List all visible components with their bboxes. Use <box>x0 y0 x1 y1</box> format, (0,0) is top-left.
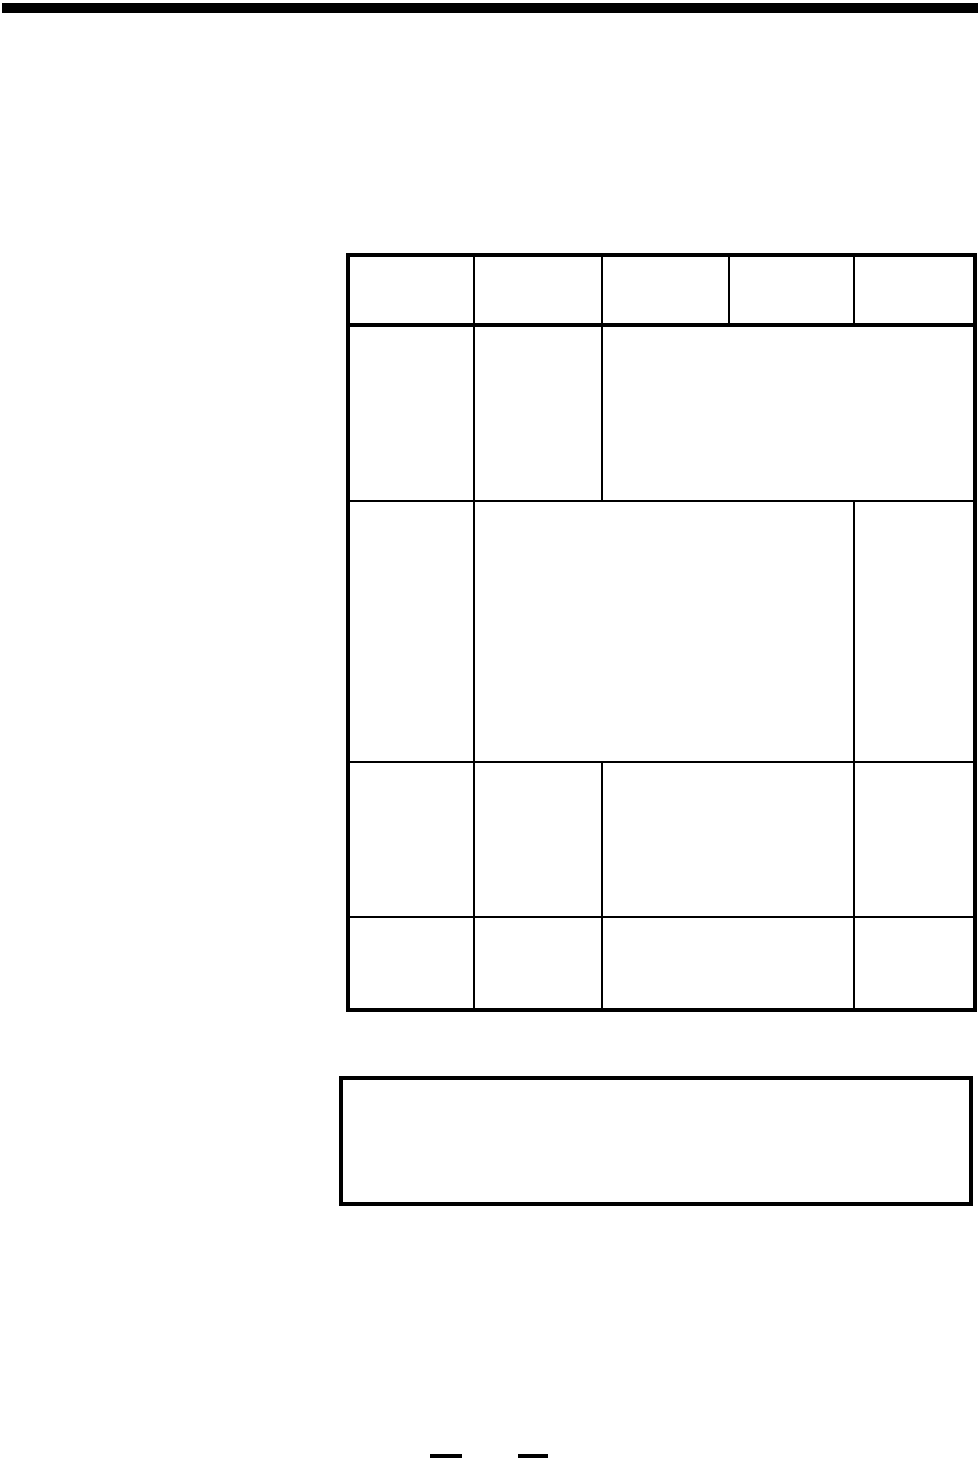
body-row-2-cell-2 <box>474 501 854 762</box>
body-row-2-cell-1 <box>348 501 474 762</box>
body-row-2 <box>348 501 975 762</box>
body-row-4-cell-1 <box>348 917 474 1010</box>
body-row-3-cell-2 <box>474 762 602 917</box>
body-row-3-cell-4 <box>854 762 975 917</box>
body-row-1-cell-3 <box>602 325 975 501</box>
document-page <box>0 0 980 1458</box>
body-row-1-cell-1 <box>348 325 474 501</box>
header-row <box>348 255 975 325</box>
body-row-3-cell-1 <box>348 762 474 917</box>
body-row-2-cell-3 <box>854 501 975 762</box>
body-row-1 <box>348 325 975 501</box>
header-row-cell-5 <box>854 255 975 325</box>
spec-table <box>346 253 977 1012</box>
body-row-3-cell-3 <box>602 762 854 917</box>
body-row-4-cell-4 <box>854 917 975 1010</box>
spec-table-body <box>348 255 975 1010</box>
body-row-4 <box>348 917 975 1010</box>
body-row-4-cell-2 <box>474 917 602 1010</box>
footer-mark-left <box>430 1454 462 1458</box>
body-row-3 <box>348 762 975 917</box>
header-row-cell-3 <box>602 255 729 325</box>
note-box <box>339 1076 973 1206</box>
header-row-cell-1 <box>348 255 474 325</box>
body-row-4-cell-3 <box>602 917 854 1010</box>
header-row-cell-2 <box>474 255 602 325</box>
header-row-cell-4 <box>729 255 854 325</box>
footer-mark-right <box>518 1454 548 1458</box>
page-top-rule <box>2 3 978 13</box>
body-row-1-cell-2 <box>474 325 602 501</box>
